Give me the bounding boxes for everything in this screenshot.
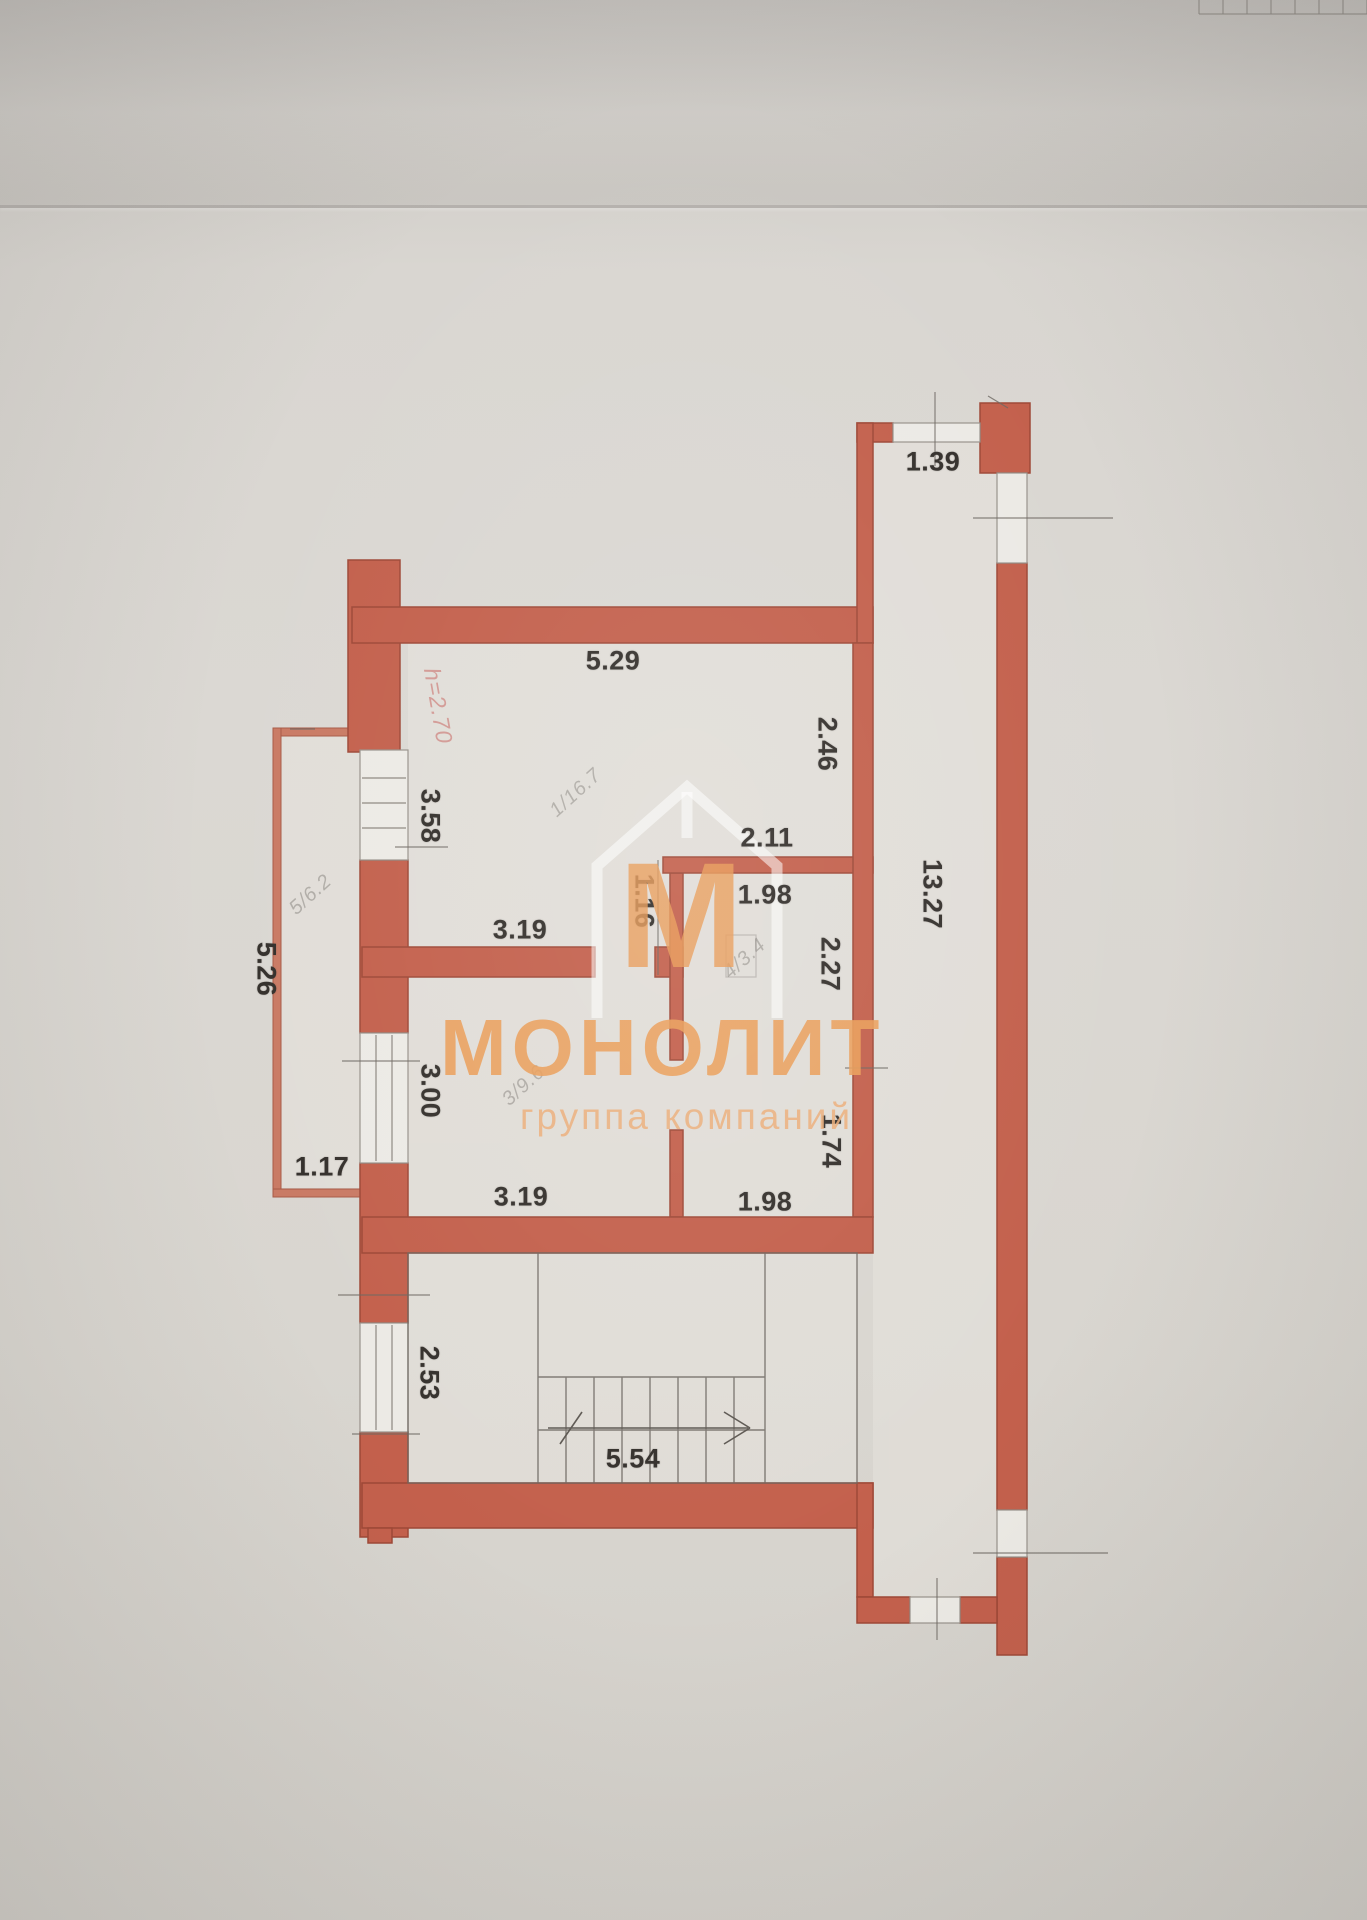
- wall-apartment-bottom: [362, 1217, 873, 1253]
- wall-stair-bottom: [362, 1483, 873, 1528]
- dimension-label: 1.16: [629, 874, 660, 929]
- wall-pier-top-left: [348, 560, 400, 752]
- wall-hall-lower: [670, 1130, 683, 1217]
- wall-notch-bottom-left: [368, 1528, 392, 1543]
- wall-apartment-right: [853, 643, 873, 1217]
- dimension-label: 3.58: [415, 789, 446, 844]
- dimension-label: 3.00: [415, 1064, 446, 1119]
- wall-corridor-top-left: [857, 423, 873, 643]
- wall-right-outer-bottom: [997, 1557, 1027, 1655]
- dimension-label: 1.17: [295, 1152, 350, 1183]
- floor-plan-drawing: [0, 0, 1367, 1920]
- window-room2: [360, 1033, 408, 1163]
- door-exit-bottom: [910, 1597, 960, 1623]
- wall-top-main: [352, 607, 873, 643]
- wall-pier-top-right: [980, 403, 1030, 473]
- dimension-label: 13.27: [917, 859, 948, 929]
- dimension-label: 2.11: [740, 823, 793, 854]
- floor-plan-photo: 1.395.292.463.582.111.981.162.2713.275.2…: [0, 0, 1367, 1920]
- dimension-label: 1.39: [906, 447, 961, 478]
- dimension-label: 5.26: [251, 942, 282, 997]
- dimension-label: 2.46: [812, 717, 843, 772]
- wall-exit-bottom-left: [857, 1597, 910, 1623]
- window-balcony-door: [360, 750, 408, 860]
- wall-exit-left: [857, 1483, 873, 1597]
- dimension-label: 5.29: [586, 646, 641, 677]
- dimension-label: 1.98: [738, 1187, 793, 1218]
- wall-right-outer: [997, 563, 1027, 1510]
- window-right-lower: [997, 1510, 1027, 1557]
- window-loggia-top: [893, 423, 980, 442]
- wall-exit-bottom-right: [960, 1597, 997, 1623]
- wall-hall-upper: [670, 873, 683, 1060]
- dimension-label: 5.54: [606, 1444, 661, 1475]
- dimension-label: 1.98: [738, 880, 793, 911]
- window-stairwell: [360, 1323, 408, 1432]
- dimension-label: 2.27: [815, 937, 846, 992]
- dimension-label: 3.19: [494, 1182, 549, 1213]
- dimension-label: 3.19: [493, 915, 548, 946]
- dimension-label: 2.53: [414, 1346, 445, 1401]
- dimension-label: 1.74: [816, 1114, 847, 1169]
- wall-room-divider-left: [362, 947, 595, 977]
- adjacent-sheet-grid: [1199, 0, 1367, 14]
